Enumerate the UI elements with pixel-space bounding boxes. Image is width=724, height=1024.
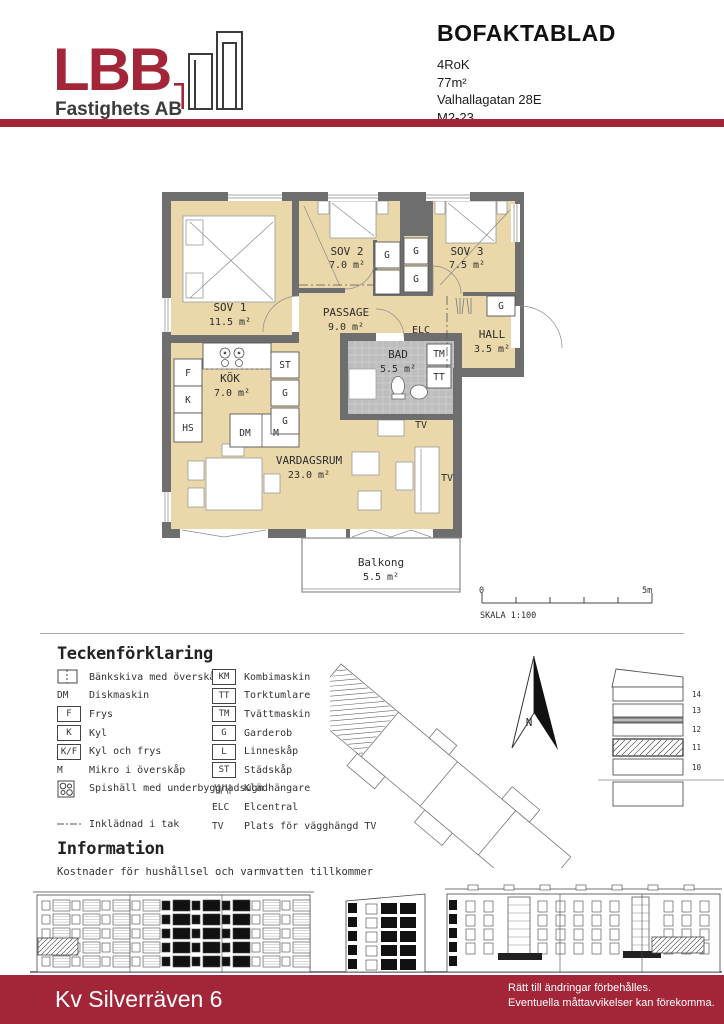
room-area: 5.5 m² xyxy=(363,572,399,583)
scale-end: 5m xyxy=(642,586,652,596)
counter-icon xyxy=(57,669,89,685)
room-label: BAD xyxy=(388,348,408,361)
room-area: 5.5 m² xyxy=(380,364,416,375)
room-area: 7.0 m² xyxy=(214,388,250,399)
fixture-label: G xyxy=(413,274,419,285)
apartment-info: BOFAKTABLAD 4RoK 77m² Valhallagatan 28E … xyxy=(437,20,616,126)
floor-label: 12 xyxy=(692,725,701,734)
floor-label: 11 xyxy=(692,743,701,752)
project-name: Kv Silverräven 6 xyxy=(55,986,222,1013)
information-title: Information xyxy=(57,839,164,859)
room-area: 7.0 m² xyxy=(329,260,365,271)
scale-bar: 0 5m SKALA 1:100 xyxy=(479,586,652,621)
svg-text:5m: 5m xyxy=(642,586,652,596)
room-label: SOV 2 xyxy=(330,245,363,258)
room-label: PASSAGE xyxy=(323,306,369,319)
information-text: Kostnader för hushållsel och varmvatten … xyxy=(57,866,373,878)
site-plan: N xyxy=(330,640,610,868)
room-label: VARDAGSRUM xyxy=(276,454,343,467)
north-arrow-icon: N xyxy=(512,656,558,750)
room-label: KÖK xyxy=(220,372,240,385)
logo-subtext: Fastighets AB xyxy=(55,99,182,120)
section-divider xyxy=(40,633,684,634)
stove-legend-icon xyxy=(57,780,89,798)
footer-bar: Kv Silverräven 6 Rätt till ändringar för… xyxy=(0,975,724,1024)
room-area: 11.5 m² xyxy=(209,317,251,328)
fixture-label: TV xyxy=(415,420,427,431)
fixture-label: HS xyxy=(182,423,194,434)
fixture-label: K xyxy=(185,395,191,406)
floor-labels: 14 13 12 11 10 xyxy=(692,690,702,772)
room-label: SOV 1 xyxy=(213,301,246,314)
fixture-label: ST xyxy=(279,360,291,371)
fixture-label: TM xyxy=(433,349,445,360)
floor-label: 10 xyxy=(692,763,702,772)
room-label: HALL xyxy=(479,328,506,341)
fixture-label: G xyxy=(498,301,504,312)
floor-label: 14 xyxy=(692,690,702,699)
info-address: Valhallagatan 28E xyxy=(437,91,616,109)
info-area: 77m² xyxy=(437,74,616,92)
coat-hanger-legend-icon xyxy=(212,782,244,796)
room-area: 9.0 m² xyxy=(328,322,364,333)
building-section: 14 13 12 11 10 xyxy=(595,645,724,825)
fixture-label: DM xyxy=(239,428,251,439)
room-area: 7.5 m² xyxy=(449,260,485,271)
room-area: 23.0 m² xyxy=(288,470,330,481)
fixture-label: G xyxy=(282,416,288,427)
scale-label: SKALA 1:100 xyxy=(480,611,536,621)
dashdot-icon xyxy=(57,821,89,827)
info-rok: 4RoK xyxy=(437,56,616,74)
fixture-label: M xyxy=(273,428,279,439)
company-logo: LBB Fastighets AB xyxy=(55,26,290,127)
toilet-icon xyxy=(392,377,405,396)
room-label: SOV 3 xyxy=(450,245,483,258)
lbb-logo-graphic: LBB Fastighets AB xyxy=(55,26,290,122)
floor-label: 13 xyxy=(692,706,701,715)
fixture-label: ELC xyxy=(412,325,430,336)
bofaktablad-page: LBB Fastighets AB BOFAKTABLAD 4RoK 77m² … xyxy=(0,0,724,1024)
entrance-door-arc xyxy=(520,306,562,348)
elevation-drawings xyxy=(30,885,722,972)
building-elevations xyxy=(0,880,724,975)
fixture-label: TV xyxy=(441,473,453,484)
fixture-label: G xyxy=(282,388,288,399)
page-title: BOFAKTABLAD xyxy=(437,20,616,47)
fixture-label: TT xyxy=(433,372,445,383)
room-area: 3.5 m² xyxy=(474,344,510,355)
north-label: N xyxy=(526,716,533,729)
fixture-label: F xyxy=(185,368,191,379)
header-divider-bar xyxy=(0,119,724,127)
logo-text: LBB xyxy=(55,36,170,103)
room-label: Balkong xyxy=(358,556,404,569)
sink-icon xyxy=(411,385,428,399)
fixture-label: G xyxy=(384,250,390,261)
footer-disclaimer: Rätt till ändringar förbehålles. Eventue… xyxy=(508,981,715,1011)
floor-plan: SOV 1 11.5 m² SOV 2 7.0 m² SOV 3 7.5 m² … xyxy=(0,130,724,633)
fixture-label: G xyxy=(413,246,419,257)
buildings-icon xyxy=(174,32,242,109)
legend-title: Teckenförklaring xyxy=(57,644,213,664)
